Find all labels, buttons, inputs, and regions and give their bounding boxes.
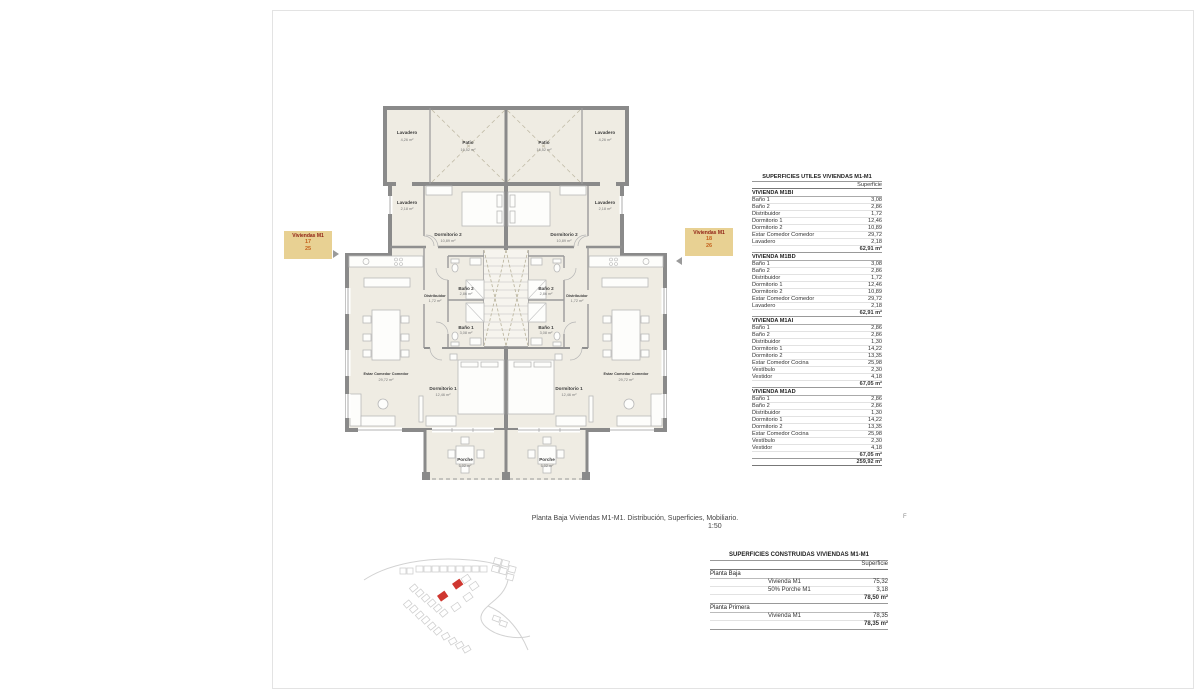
table-row: Vestidor4,18 — [752, 445, 882, 452]
room-label: Estar Comedor Comedor — [604, 372, 649, 376]
room-area: 16,52 m² — [461, 148, 477, 152]
room-label: Baño 1 — [458, 325, 474, 330]
room-area: 2,18 m² — [599, 207, 613, 211]
room-label: Baño 2 — [458, 286, 474, 291]
table-row: Dormitorio 210,89 — [752, 289, 882, 296]
room-label: Porche — [539, 457, 555, 462]
table-row: Lavadero2,18 — [752, 303, 882, 310]
room-label: Estar Comedor Comedor — [364, 372, 409, 376]
room-label: Patio — [538, 140, 549, 145]
room-area: 3,08 m² — [460, 331, 474, 335]
table-row: Baño 13,08 — [752, 197, 882, 204]
room-label: Dormitorio 1 — [555, 386, 583, 391]
room-area: 1,72 m² — [571, 299, 585, 303]
room-label: Dormitorio 1 — [429, 386, 457, 391]
room-label: Lavadero — [397, 130, 418, 135]
room-area: 12,46 m² — [562, 393, 578, 397]
table-row: Dormitorio 114,22 — [752, 417, 882, 424]
unit-tag-number: 26 — [685, 243, 733, 250]
room-area: 10,89 m² — [441, 239, 457, 243]
table-row: Baño 13,08 — [752, 261, 882, 268]
section-header: Planta Primera — [710, 605, 888, 613]
table-row: Dormitorio 210,89 — [752, 225, 882, 232]
table-row: Dormitorio 114,22 — [752, 346, 882, 353]
block-header: VIVIENDA M1AI — [752, 318, 882, 325]
table-row: Distribuidor1,72 — [752, 211, 882, 218]
floor-plan-drawing: Lavadero 4,26 m² Patio 16,52 m² Lavadero… — [340, 98, 672, 500]
table-row: Estar Comedor Comedor29,72 — [752, 232, 882, 239]
room-area: 2,86 m² — [460, 292, 474, 296]
room-area: 12,46 m² — [436, 393, 452, 397]
pointer-right-icon — [333, 250, 339, 258]
block-total: 62,91 m² — [752, 310, 882, 317]
table-row: Dormitorio 213,35 — [752, 424, 882, 431]
room-label: Distribuidor — [424, 294, 446, 298]
room-area: 3,08 m² — [540, 331, 554, 335]
table-row: Vestidor4,18 — [752, 374, 882, 381]
table-row: Distribuidor1,72 — [752, 275, 882, 282]
table-column-header: Superficie — [710, 561, 888, 569]
room-label: Patio — [462, 140, 473, 145]
table-row: Dormitorio 112,46 — [752, 218, 882, 225]
unit-tag-right: Viviendas M1 18 26 — [685, 228, 733, 256]
table-row: Vestíbulo2,30 — [752, 438, 882, 445]
table-column-header: Superficie — [752, 182, 882, 189]
block-total: 67,05 m² — [752, 381, 882, 388]
pointer-left-icon — [676, 257, 682, 265]
room-area: 6,02 m² — [459, 464, 473, 468]
table-row: Baño 22,86 — [752, 403, 882, 410]
caption-text: Planta Baja Viviendas M1-M1. Distribució… — [500, 515, 770, 523]
block-header: VIVIENDA M1BD — [752, 254, 882, 261]
table-row: Dormitorio 112,46 — [752, 282, 882, 289]
superficies-construidas-table: SUPERFICIES CONSTRUIDAS VIVIENDAS M1-M1 … — [710, 552, 888, 630]
plan-caption: Planta Baja Viviendas M1-M1. Distribució… — [500, 515, 770, 531]
room-area: 4,26 m² — [599, 138, 613, 142]
room-label: Baño 1 — [538, 325, 554, 330]
site-plan-map — [358, 550, 536, 658]
block-header: VIVIENDA M1AD — [752, 389, 882, 396]
room-label: Dormitorio 2 — [434, 232, 462, 237]
table-row: Dormitorio 213,35 — [752, 353, 882, 360]
table-row: Distribuidor1,30 — [752, 339, 882, 346]
room-label: Distribuidor — [566, 294, 588, 298]
room-area: 10,89 m² — [557, 239, 573, 243]
table-row: Baño 22,86 — [752, 332, 882, 339]
room-area: 1,72 m² — [429, 299, 443, 303]
table-row: 50% Porche M13,18 — [710, 587, 888, 595]
room-label: Lavadero — [595, 200, 616, 205]
caption-scale: 1:50 — [500, 523, 770, 531]
room-area: 2,18 m² — [401, 207, 415, 211]
room-label: Lavadero — [595, 130, 616, 135]
margin-mark: F — [903, 514, 907, 520]
table-row: Estar Comedor Cocina25,98 — [752, 360, 882, 367]
block-header: VIVIENDA M1BI — [752, 190, 882, 197]
room-label: Porche — [457, 457, 473, 462]
block-total: 62,91 m² — [752, 246, 882, 253]
table-row: Baño 22,86 — [752, 268, 882, 275]
room-area: 6,02 m² — [541, 464, 555, 468]
table-row: Distribuidor1,30 — [752, 410, 882, 417]
room-label: Baño 2 — [538, 286, 554, 291]
section-total: 78,35 m² — [710, 621, 888, 629]
table-row: Estar Comedor Cocina25,98 — [752, 431, 882, 438]
drawing-sheet: Lavadero 4,26 m² Patio 16,52 m² Lavadero… — [0, 0, 1200, 698]
room-area: 29,72 m² — [619, 378, 635, 382]
table-row: Baño 22,86 — [752, 204, 882, 211]
superficies-utiles-table: SUPERFICIES UTILES VIVIENDAS M1-M1 Super… — [752, 174, 882, 466]
section-total: 78,50 m² — [710, 595, 888, 603]
unit-tag-number: 25 — [284, 246, 332, 253]
table-row: Vivienda M178,35 — [710, 613, 888, 621]
room-area: 4,26 m² — [401, 138, 415, 142]
block-total: 67,05 m² — [752, 452, 882, 459]
section-header: Planta Baja — [710, 571, 888, 579]
table-row: Baño 12,86 — [752, 325, 882, 332]
room-label: Lavadero — [397, 200, 418, 205]
highlighted-unit — [437, 579, 463, 602]
site-buildings — [400, 557, 517, 653]
table-title: SUPERFICIES UTILES VIVIENDAS M1-M1 — [752, 174, 882, 182]
room-area: 2,86 m² — [540, 292, 554, 296]
table-grand-total: 259,92 m² — [752, 459, 882, 466]
room-area: 29,72 m² — [379, 378, 395, 382]
room-label: Dormitorio 2 — [550, 232, 578, 237]
table-row: Vestíbulo2,30 — [752, 367, 882, 374]
table-row: Estar Comedor Comedor29,72 — [752, 296, 882, 303]
unit-tag-left: Viviendas M1 17 25 — [284, 231, 332, 259]
table-title: SUPERFICIES CONSTRUIDAS VIVIENDAS M1-M1 — [710, 552, 888, 561]
table-row: Lavadero2,18 — [752, 239, 882, 246]
table-row: Baño 12,86 — [752, 396, 882, 403]
table-row: Vivienda M175,32 — [710, 579, 888, 587]
room-area: 16,52 m² — [537, 148, 553, 152]
